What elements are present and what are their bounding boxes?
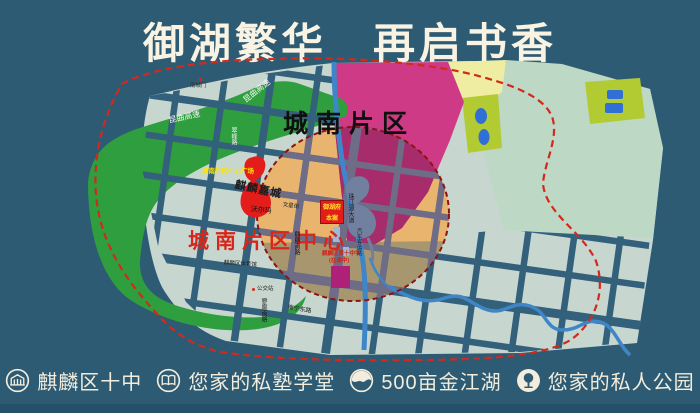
map-label-center: 城南片区中心 [188,231,350,252]
lake-icon [349,368,374,393]
legend-label-lake: 500亩金江湖 [381,366,501,395]
park-lake [479,129,490,145]
park-lake [605,103,623,113]
project-site-marker: 御湖府 本案 [320,200,344,224]
magenta-building [331,266,350,288]
map-label-school-2: (在建中) [329,259,349,265]
map-label-plaza: 城南片区中心广场 [202,169,254,176]
park-lake [607,90,623,99]
map-road-liaokuo: 寥廓南路 [260,298,266,322]
bottom-strip [0,404,700,413]
legend-item-academy: 您家的私塾学堂 [156,366,335,395]
tree-icon [516,368,541,393]
poster: 御湖繁华 再启书香 [0,0,700,413]
map-road-zhujiangyuan: 珠江源大道 [347,193,353,223]
map-road-qilin-south: 麒麟南路 [293,231,299,255]
project-site-tag: 本案 [326,213,338,222]
legend-label-academy: 您家的私塾学堂 [188,366,335,395]
park-lake [475,108,487,124]
book-icon [156,368,181,393]
legend-item-park: 您家的私人公园 [516,366,695,395]
project-site-name: 御湖府 [323,202,341,211]
legend-label-park: 您家的私人公园 [548,366,695,395]
map-label-station: 汽车客运站 [355,228,361,256]
legend-item-school: 麒麟区十中 [5,366,142,395]
map-road-cuifeng: 翠峰路 [230,127,236,145]
gate-marker-dot [199,78,202,81]
legend-bar: 麒麟区十中 您家的私塾学堂 500亩金江湖 您家的私人公园 [0,362,700,398]
legend-label-school: 麒麟区十中 [37,366,142,395]
map-label-bus: 公交站 [257,287,274,293]
bus-marker-dot [252,288,255,291]
park-east [585,78,645,124]
map-label-gate: 南城门 [190,84,207,90]
map-label-district: 城南片区 [283,112,415,137]
school-icon [5,368,30,393]
legend-item-lake: 500亩金江湖 [349,366,501,395]
